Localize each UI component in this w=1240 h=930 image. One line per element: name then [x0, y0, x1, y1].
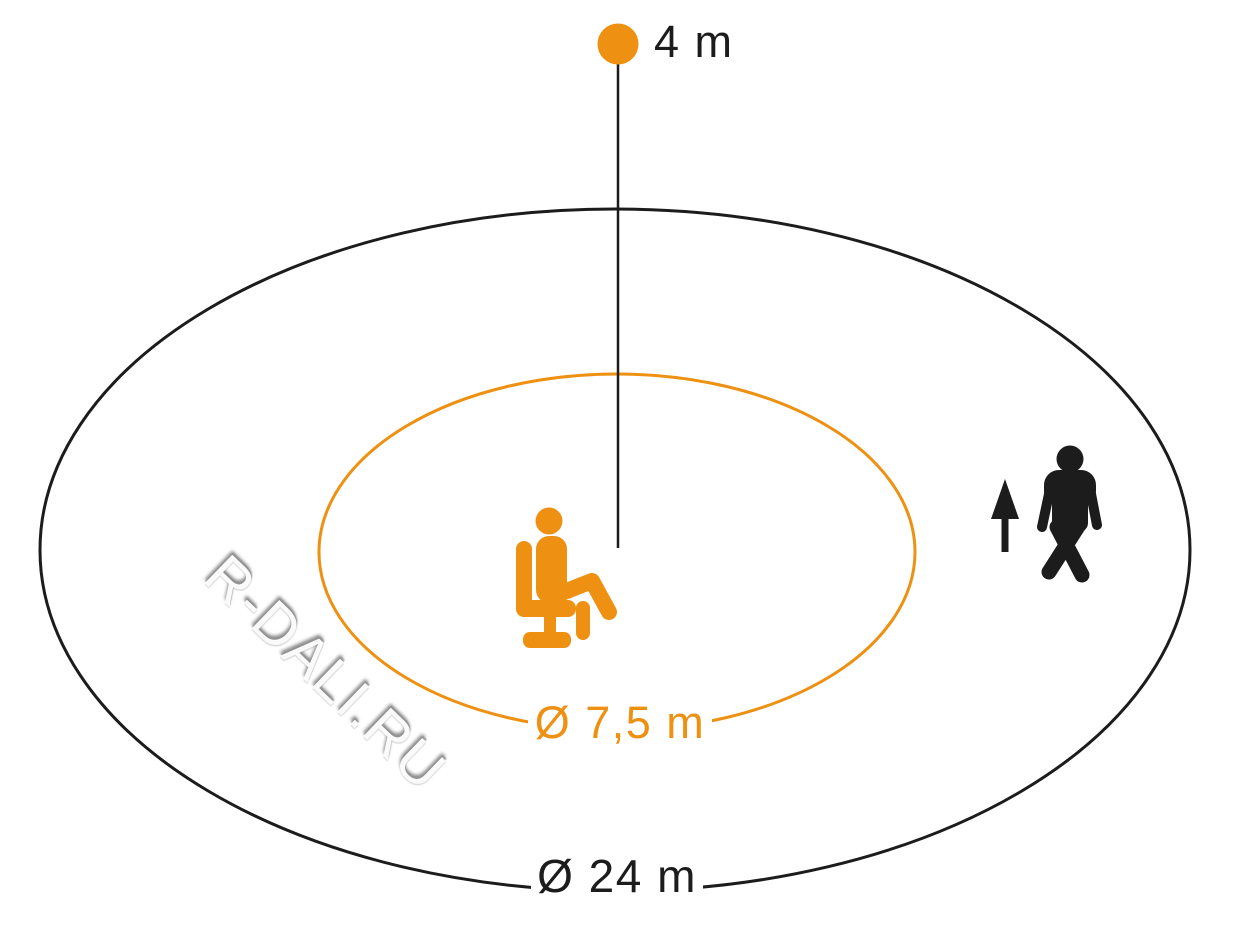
inner-diameter-label: Ø 7,5 m [528, 697, 712, 749]
mount-height-label: 4 m [654, 16, 734, 68]
seated-person-icon [516, 508, 609, 649]
walking-person-icon [1042, 446, 1097, 576]
up-arrow-icon [991, 479, 1019, 552]
coverage-diagram-svg [0, 0, 1240, 930]
sensor-dot-icon [598, 24, 639, 65]
coverage-diagram: R-DALI.RU [0, 0, 1240, 930]
outer-diameter-label: Ø 24 m [531, 849, 703, 903]
outer-coverage-ellipse [40, 209, 1190, 891]
